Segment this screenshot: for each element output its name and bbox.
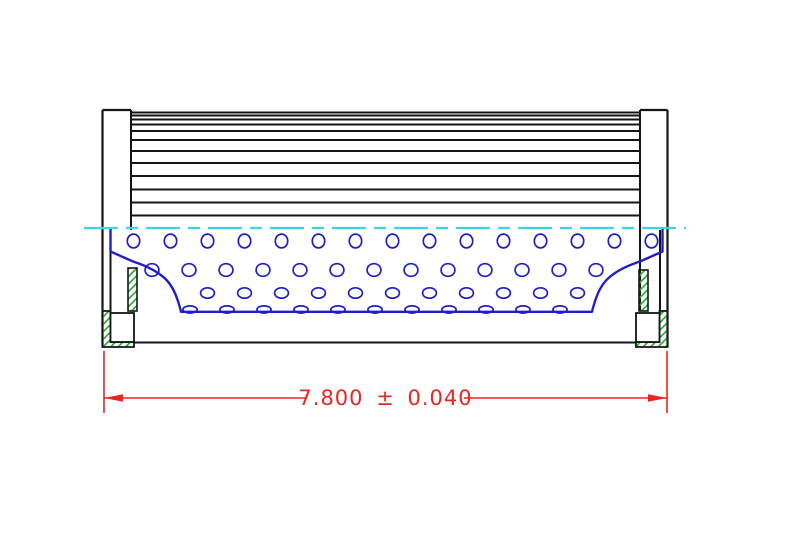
perforation-hole — [645, 234, 657, 248]
right-gasket-notch — [636, 313, 660, 342]
perforation-hole — [275, 234, 287, 248]
perforation-hole — [238, 288, 252, 298]
perforation-hole — [312, 234, 324, 248]
right-seam-strip — [639, 270, 648, 311]
perforated-core — [111, 229, 663, 314]
perforation-hole — [275, 288, 289, 298]
perforation-hole — [256, 264, 270, 277]
dimension-arrow-right — [648, 394, 667, 402]
perforation-hole — [182, 264, 196, 277]
perforation-hole — [460, 288, 474, 298]
filter-element-drawing: 7.800 ± 0.040 — [0, 0, 789, 546]
perforation-hole — [293, 264, 307, 277]
perforation-hole — [127, 234, 139, 248]
perforation-hole — [571, 288, 585, 298]
perforation-hole — [423, 288, 437, 298]
perforation-hole — [349, 288, 363, 298]
perforation-hole — [552, 264, 566, 277]
perforation-hole — [219, 264, 233, 277]
perforation-hole — [330, 264, 344, 277]
perforation-hole — [164, 234, 176, 248]
perforation-hole — [515, 264, 529, 277]
left-seam-strip — [128, 268, 137, 311]
perforation-hole — [349, 234, 361, 248]
perforation-hole — [404, 264, 418, 277]
perforation-hole — [589, 264, 603, 277]
perforation-hole — [534, 234, 546, 248]
perforation-hole — [497, 234, 509, 248]
perforation-hole — [238, 234, 250, 248]
perforation-hole — [201, 288, 215, 298]
dimension-text: 7.800 ± 0.040 — [298, 386, 472, 410]
perforation-hole — [441, 264, 455, 277]
perforation-hole — [571, 234, 583, 248]
perforation-hole — [534, 288, 548, 298]
left-gasket-notch — [111, 313, 135, 342]
perforation-hole — [608, 234, 620, 248]
gasket-sections — [103, 268, 668, 347]
drawing-page: 7.800 ± 0.040 — [0, 0, 789, 546]
dimension-arrow-left — [104, 394, 123, 402]
perforation-hole — [386, 288, 400, 298]
perforation-hole — [367, 264, 381, 277]
perforation-hole — [386, 234, 398, 248]
pleat-stack — [131, 113, 640, 216]
perforation-hole — [478, 264, 492, 277]
width-dimension: 7.800 ± 0.040 — [104, 351, 667, 413]
perforation-hole — [497, 288, 511, 298]
perforation-hole — [312, 288, 326, 298]
perforation-hole — [423, 234, 435, 248]
perforation-hole — [201, 234, 213, 248]
perforation-hole — [460, 234, 472, 248]
